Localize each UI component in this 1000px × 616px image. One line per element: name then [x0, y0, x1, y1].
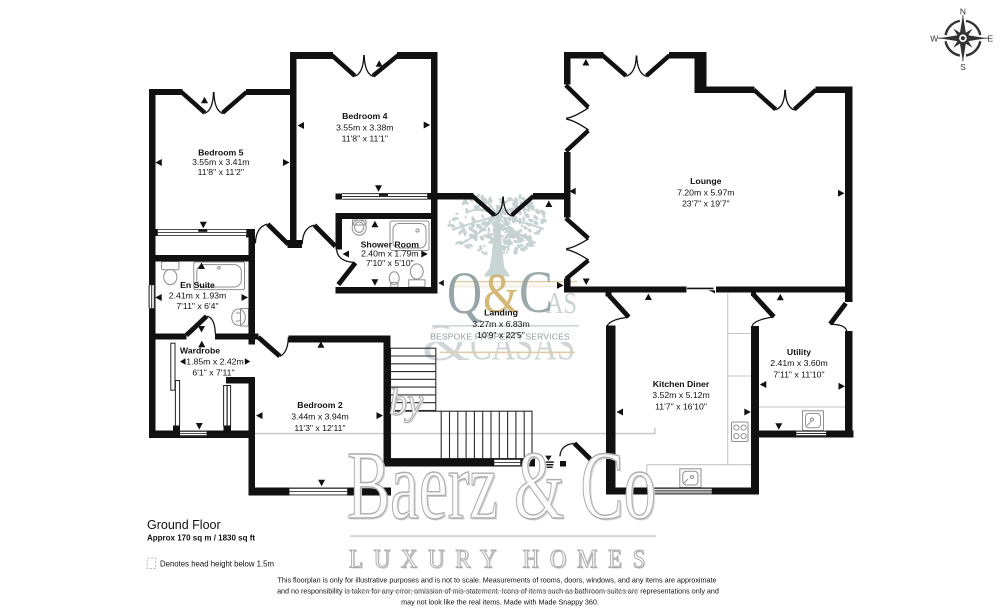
svg-text:Approx 170 sq m / 1830 sq ft: Approx 170 sq m / 1830 sq ft: [147, 534, 255, 543]
svg-text:3.55m x 3.38m: 3.55m x 3.38m: [336, 122, 393, 132]
svg-text:11'8" x 11'2": 11'8" x 11'2": [198, 167, 244, 177]
svg-text:6'1" x 7'11": 6'1" x 7'11": [192, 367, 234, 377]
svg-text:11'8" x 11'1": 11'8" x 11'1": [342, 134, 388, 144]
svg-text:Landing: Landing: [484, 308, 518, 318]
svg-text:11'7" x 16'10": 11'7" x 16'10": [655, 401, 707, 411]
svg-text:may not look like the real ite: may not look like the real items. Made w…: [401, 597, 599, 606]
svg-text:En Suite: En Suite: [180, 280, 215, 290]
svg-text:S: S: [960, 62, 966, 72]
svg-text:3.52m x 5.12m: 3.52m x 5.12m: [652, 390, 709, 400]
svg-text:10'9" x 22'5": 10'9" x 22'5": [477, 330, 525, 340]
svg-text:7.20m x 5.97m: 7.20m x 5.97m: [677, 187, 734, 197]
svg-text:7'11" x 11'10": 7'11" x 11'10": [773, 369, 824, 379]
svg-text:1.85m x 2.42m: 1.85m x 2.42m: [186, 356, 243, 366]
svg-text:3.27m x 6.83m: 3.27m x 6.83m: [472, 319, 529, 329]
svg-text:23'7" x 19'7": 23'7" x 19'7": [682, 199, 730, 209]
svg-text:Bedroom 4: Bedroom 4: [342, 111, 388, 121]
svg-text:11'3" x 12'11": 11'3" x 12'11": [294, 423, 345, 433]
svg-text:Wardrobe: Wardrobe: [180, 345, 220, 355]
svg-text:3.55m x 3.41m: 3.55m x 3.41m: [192, 157, 249, 167]
svg-text:3.44m x 3.94m: 3.44m x 3.94m: [291, 412, 348, 422]
svg-text:by: by: [389, 382, 423, 424]
svg-text:Denotes head height below 1.5m: Denotes head height below 1.5m: [160, 560, 274, 569]
svg-text:Bedroom 5: Bedroom 5: [198, 147, 244, 157]
svg-text:7'10" x 5'10": 7'10" x 5'10": [366, 258, 414, 268]
svg-text:N: N: [960, 7, 966, 17]
svg-text:E: E: [987, 33, 993, 43]
svg-text:Baerz & Co: Baerz & Co: [347, 432, 656, 540]
svg-text:Ground Floor: Ground Floor: [147, 518, 221, 532]
svg-text:Lounge: Lounge: [690, 176, 722, 186]
svg-text:7'11" x 6'4": 7'11" x 6'4": [176, 301, 218, 311]
svg-text:Bedroom 2: Bedroom 2: [297, 400, 343, 410]
svg-text:2.41m x 1.93m: 2.41m x 1.93m: [169, 290, 226, 300]
svg-text:2.41m x 3.60m: 2.41m x 3.60m: [770, 358, 827, 368]
svg-text:Utility: Utility: [787, 347, 811, 357]
svg-text:Kitchen Diner: Kitchen Diner: [653, 379, 710, 389]
svg-text:LUXURY HOMES: LUXURY HOMES: [349, 545, 656, 574]
svg-text:This floorplan is only for ill: This floorplan is only for illustrative …: [277, 576, 716, 585]
svg-text:W: W: [930, 33, 938, 43]
